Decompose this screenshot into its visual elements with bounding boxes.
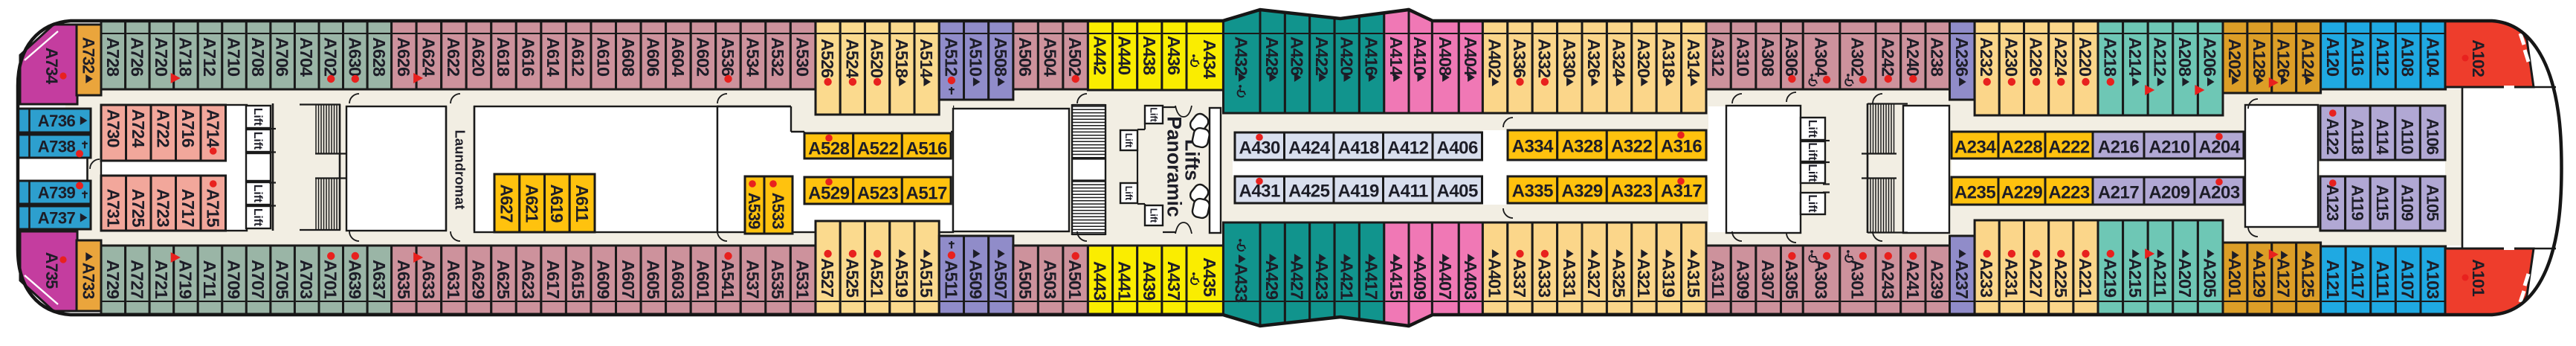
svg-text:A323: A323 bbox=[1611, 182, 1653, 202]
svg-text:A531: A531 bbox=[793, 260, 813, 299]
svg-text:A201: A201 bbox=[2225, 258, 2244, 298]
svg-text:A718: A718 bbox=[175, 37, 195, 77]
svg-text:A730: A730 bbox=[104, 109, 123, 147]
svg-text:A437: A437 bbox=[1164, 261, 1184, 301]
svg-text:A724: A724 bbox=[129, 109, 148, 148]
svg-text:A719: A719 bbox=[175, 260, 195, 299]
svg-text:A737: A737 bbox=[38, 208, 76, 227]
svg-text:A504: A504 bbox=[1041, 37, 1060, 77]
svg-text:A308: A308 bbox=[1758, 37, 1778, 77]
svg-text:A218: A218 bbox=[2100, 37, 2120, 77]
svg-text:A307: A307 bbox=[1758, 260, 1778, 299]
svg-text:A411: A411 bbox=[1388, 182, 1428, 202]
svg-text:A505: A505 bbox=[1016, 260, 1035, 299]
svg-text:A208: A208 bbox=[2175, 37, 2195, 77]
svg-text:A526: A526 bbox=[818, 39, 837, 78]
svg-text:A129: A129 bbox=[2250, 258, 2269, 298]
svg-text:A110: A110 bbox=[2398, 118, 2417, 154]
svg-text:A125: A125 bbox=[2299, 258, 2318, 298]
svg-text:A425: A425 bbox=[1288, 182, 1330, 202]
svg-text:A408: A408 bbox=[1436, 36, 1455, 76]
svg-text:A623: A623 bbox=[519, 260, 538, 299]
svg-text:A109: A109 bbox=[2398, 185, 2417, 221]
svg-text:A316: A316 bbox=[1661, 137, 1702, 157]
svg-text:A410: A410 bbox=[1410, 36, 1430, 76]
svg-text:A206: A206 bbox=[2201, 37, 2220, 77]
svg-text:A528: A528 bbox=[808, 139, 850, 159]
svg-text:A232: A232 bbox=[1977, 37, 1996, 77]
svg-text:A602: A602 bbox=[694, 37, 713, 77]
svg-text:A420: A420 bbox=[1337, 36, 1356, 76]
svg-text:A619: A619 bbox=[547, 185, 566, 222]
svg-text:A535: A535 bbox=[768, 260, 787, 299]
svg-text:A515: A515 bbox=[917, 258, 936, 298]
svg-text:A216: A216 bbox=[2098, 138, 2140, 158]
svg-text:Lift: Lift bbox=[251, 108, 264, 126]
svg-text:A530: A530 bbox=[793, 37, 813, 77]
svg-text:A728: A728 bbox=[103, 37, 123, 77]
svg-text:A226: A226 bbox=[2027, 37, 2046, 77]
svg-text:A527: A527 bbox=[818, 258, 837, 298]
svg-text:A108: A108 bbox=[2398, 37, 2418, 77]
svg-text:A725: A725 bbox=[129, 189, 148, 228]
svg-text:A716: A716 bbox=[178, 109, 198, 147]
svg-text:A442: A442 bbox=[1091, 36, 1110, 75]
svg-text:A439: A439 bbox=[1140, 261, 1159, 301]
svg-text:A414: A414 bbox=[1387, 36, 1406, 76]
svg-text:A235: A235 bbox=[1954, 183, 1996, 203]
svg-text:A318: A318 bbox=[1659, 39, 1678, 78]
svg-text:A738: A738 bbox=[38, 137, 76, 156]
svg-text:A726: A726 bbox=[127, 37, 146, 77]
svg-text:A507: A507 bbox=[991, 260, 1010, 299]
svg-text:A712: A712 bbox=[200, 37, 219, 77]
svg-text:A412: A412 bbox=[1387, 138, 1429, 158]
svg-text:A126: A126 bbox=[2274, 39, 2293, 78]
svg-text:A229: A229 bbox=[2001, 183, 2043, 203]
svg-text:A516: A516 bbox=[906, 139, 948, 159]
svg-text:A330: A330 bbox=[1560, 39, 1579, 78]
svg-text:A514: A514 bbox=[917, 39, 936, 78]
svg-text:A419: A419 bbox=[1338, 182, 1380, 202]
svg-text:A331: A331 bbox=[1560, 258, 1579, 298]
svg-text:A731: A731 bbox=[104, 189, 123, 228]
svg-text:A429: A429 bbox=[1262, 260, 1282, 300]
svg-text:A122: A122 bbox=[2323, 118, 2342, 155]
svg-text:A601: A601 bbox=[694, 260, 713, 299]
svg-text:A711: A711 bbox=[200, 260, 219, 299]
svg-text:A402: A402 bbox=[1485, 39, 1505, 78]
svg-text:A721: A721 bbox=[152, 260, 171, 299]
svg-text:A409: A409 bbox=[1410, 260, 1430, 300]
svg-text:A214: A214 bbox=[2125, 37, 2145, 77]
svg-text:A415: A415 bbox=[1387, 260, 1406, 300]
svg-text:A626: A626 bbox=[394, 37, 413, 77]
svg-text:A610: A610 bbox=[593, 37, 613, 77]
svg-text:A501: A501 bbox=[1065, 260, 1085, 299]
svg-text:A406: A406 bbox=[1437, 138, 1479, 158]
svg-text:A324: A324 bbox=[1610, 39, 1629, 78]
svg-text:A227: A227 bbox=[2027, 258, 2046, 298]
svg-text:A237: A237 bbox=[1952, 260, 1972, 299]
svg-text:A103: A103 bbox=[2423, 260, 2442, 299]
svg-text:A337: A337 bbox=[1510, 258, 1529, 298]
svg-text:A735: A735 bbox=[42, 252, 61, 289]
svg-text:A625: A625 bbox=[494, 260, 513, 299]
svg-text:Lift: Lift bbox=[1806, 120, 1818, 138]
svg-text:A329: A329 bbox=[1561, 182, 1603, 202]
svg-text:A119: A119 bbox=[2348, 185, 2366, 220]
svg-text:A612: A612 bbox=[569, 37, 588, 77]
svg-text:Lift: Lift bbox=[251, 132, 264, 150]
svg-text:A611: A611 bbox=[572, 185, 592, 222]
svg-text:A305: A305 bbox=[1782, 260, 1801, 299]
svg-text:A440: A440 bbox=[1115, 36, 1134, 75]
svg-text:A521: A521 bbox=[868, 258, 887, 298]
svg-text:A729: A729 bbox=[103, 260, 123, 299]
svg-text:A115: A115 bbox=[2373, 185, 2392, 220]
svg-text:A301: A301 bbox=[1847, 260, 1867, 299]
svg-text:A405: A405 bbox=[1437, 182, 1479, 202]
svg-text:A511: A511 bbox=[941, 260, 961, 299]
svg-text:A418: A418 bbox=[1338, 138, 1380, 158]
svg-text:A202: A202 bbox=[2225, 39, 2244, 78]
svg-text:A620: A620 bbox=[469, 37, 488, 77]
svg-text:A433: A433 bbox=[1232, 263, 1251, 303]
svg-text:A306: A306 bbox=[1782, 37, 1801, 77]
svg-text:Lift: Lift bbox=[1123, 186, 1134, 201]
svg-text:A219: A219 bbox=[2100, 258, 2120, 298]
svg-text:A607: A607 bbox=[619, 260, 638, 299]
svg-text:A706: A706 bbox=[273, 37, 292, 77]
svg-text:A312: A312 bbox=[1708, 37, 1728, 77]
svg-text:Lift: Lift bbox=[1806, 194, 1818, 212]
svg-text:A336: A336 bbox=[1510, 39, 1529, 78]
svg-text:A503: A503 bbox=[1041, 260, 1060, 299]
svg-text:A524: A524 bbox=[842, 39, 862, 78]
svg-text:A443: A443 bbox=[1091, 261, 1110, 301]
svg-text:A616: A616 bbox=[519, 37, 538, 77]
svg-text:A238: A238 bbox=[1928, 37, 1947, 77]
svg-text:A230: A230 bbox=[2001, 37, 2021, 77]
svg-text:A710: A710 bbox=[225, 37, 244, 77]
svg-text:A605: A605 bbox=[643, 260, 662, 299]
svg-text:Lift: Lift bbox=[1123, 133, 1134, 148]
svg-text:A615: A615 bbox=[569, 260, 588, 299]
svg-text:A709: A709 bbox=[225, 260, 244, 299]
svg-text:A539: A539 bbox=[745, 193, 764, 229]
svg-text:A101: A101 bbox=[2469, 259, 2488, 296]
svg-text:A717: A717 bbox=[178, 189, 198, 227]
svg-text:A241: A241 bbox=[1903, 260, 1923, 299]
svg-text:A630: A630 bbox=[345, 37, 364, 77]
svg-text:A434: A434 bbox=[1200, 39, 1219, 79]
svg-text:A121: A121 bbox=[2323, 260, 2343, 299]
svg-text:A633: A633 bbox=[419, 260, 438, 299]
svg-text:A618: A618 bbox=[494, 37, 513, 77]
svg-text:A231: A231 bbox=[2001, 258, 2021, 298]
svg-text:A203: A203 bbox=[2198, 183, 2240, 203]
svg-text:A333: A333 bbox=[1534, 258, 1554, 298]
svg-text:Lift: Lift bbox=[1149, 107, 1159, 122]
svg-text:A622: A622 bbox=[444, 37, 463, 77]
svg-text:A523: A523 bbox=[857, 184, 899, 204]
svg-text:Lift: Lift bbox=[251, 208, 264, 226]
svg-text:A438: A438 bbox=[1140, 36, 1159, 75]
svg-text:A404: A404 bbox=[1461, 36, 1480, 76]
svg-text:A325: A325 bbox=[1610, 258, 1629, 298]
svg-text:A220: A220 bbox=[2076, 37, 2095, 77]
svg-text:A732: A732 bbox=[80, 37, 98, 74]
svg-text:A609: A609 bbox=[593, 260, 613, 299]
svg-text:A303: A303 bbox=[1812, 260, 1831, 299]
svg-text:A221: A221 bbox=[2076, 258, 2095, 298]
svg-text:Lift: Lift bbox=[1149, 208, 1159, 223]
svg-text:A114: A114 bbox=[2373, 118, 2392, 155]
svg-text:A315: A315 bbox=[1684, 258, 1703, 298]
svg-text:A733: A733 bbox=[80, 263, 98, 299]
svg-text:A209: A209 bbox=[2149, 183, 2190, 203]
svg-text:A517: A517 bbox=[906, 184, 948, 204]
svg-text:A423: A423 bbox=[1312, 260, 1331, 300]
svg-text:Laundromat: Laundromat bbox=[452, 130, 468, 210]
svg-text:A707: A707 bbox=[248, 260, 268, 299]
svg-text:A228: A228 bbox=[2001, 138, 2043, 158]
svg-text:A416: A416 bbox=[1362, 36, 1381, 76]
svg-text:A116: A116 bbox=[2349, 38, 2368, 77]
svg-text:A635: A635 bbox=[394, 260, 413, 299]
svg-text:A702: A702 bbox=[321, 37, 340, 77]
svg-text:A225: A225 bbox=[2051, 258, 2070, 298]
svg-text:A424: A424 bbox=[1288, 138, 1331, 158]
svg-text:A128: A128 bbox=[2250, 39, 2269, 78]
svg-text:A401: A401 bbox=[1485, 258, 1505, 298]
svg-text:A111: A111 bbox=[2373, 260, 2392, 298]
svg-text:A112: A112 bbox=[2373, 38, 2392, 77]
svg-text:A426: A426 bbox=[1288, 36, 1307, 76]
svg-text:A510: A510 bbox=[966, 37, 986, 77]
svg-text:A326: A326 bbox=[1584, 39, 1604, 78]
svg-text:A606: A606 bbox=[643, 37, 662, 77]
svg-text:A522: A522 bbox=[857, 139, 899, 159]
svg-text:A739: A739 bbox=[38, 183, 76, 202]
svg-text:A327: A327 bbox=[1584, 258, 1604, 298]
svg-text:A217: A217 bbox=[2098, 183, 2140, 203]
svg-text:A603: A603 bbox=[668, 260, 688, 299]
svg-text:A508: A508 bbox=[991, 37, 1010, 77]
svg-text:A117: A117 bbox=[2349, 260, 2368, 299]
svg-text:A432: A432 bbox=[1232, 36, 1251, 76]
svg-text:Lift: Lift bbox=[251, 185, 264, 202]
svg-text:A436: A436 bbox=[1164, 36, 1184, 75]
svg-text:A102: A102 bbox=[2469, 39, 2488, 77]
svg-text:A628: A628 bbox=[369, 37, 389, 77]
svg-text:A322: A322 bbox=[1611, 137, 1653, 157]
svg-text:A533: A533 bbox=[769, 193, 787, 229]
svg-text:A631: A631 bbox=[444, 260, 463, 299]
svg-text:A211: A211 bbox=[2151, 259, 2170, 298]
svg-text:A205: A205 bbox=[2201, 258, 2220, 298]
svg-text:A727: A727 bbox=[127, 260, 146, 299]
svg-text:A314: A314 bbox=[1684, 39, 1703, 78]
svg-text:A304: A304 bbox=[1812, 37, 1831, 77]
svg-text:A321: A321 bbox=[1634, 258, 1653, 298]
svg-text:A534: A534 bbox=[743, 37, 763, 77]
svg-text:A118: A118 bbox=[2348, 118, 2366, 154]
svg-text:A332: A332 bbox=[1534, 39, 1554, 78]
svg-text:A715: A715 bbox=[204, 189, 223, 228]
svg-text:A608: A608 bbox=[619, 37, 638, 77]
svg-text:A242: A242 bbox=[1878, 37, 1897, 77]
svg-text:A120: A120 bbox=[2323, 37, 2343, 77]
svg-text:A403: A403 bbox=[1461, 260, 1480, 300]
svg-text:A302: A302 bbox=[1847, 37, 1867, 77]
svg-text:A621: A621 bbox=[522, 185, 541, 223]
svg-text:A723: A723 bbox=[154, 189, 173, 227]
svg-text:A407: A407 bbox=[1436, 260, 1455, 300]
svg-text:A502: A502 bbox=[1065, 37, 1085, 77]
svg-text:A736: A736 bbox=[38, 112, 76, 130]
svg-text:A704: A704 bbox=[297, 37, 316, 77]
svg-text:A627: A627 bbox=[497, 185, 517, 222]
svg-text:Lift: Lift bbox=[1806, 164, 1818, 182]
svg-text:A519: A519 bbox=[892, 258, 911, 298]
svg-text:A236: A236 bbox=[1952, 37, 1972, 77]
svg-text:A421: A421 bbox=[1337, 260, 1356, 300]
svg-text:A520: A520 bbox=[868, 39, 887, 78]
svg-text:A239: A239 bbox=[1928, 260, 1947, 299]
svg-text:A720: A720 bbox=[152, 37, 171, 77]
svg-text:A734: A734 bbox=[42, 48, 61, 85]
svg-text:A243: A243 bbox=[1878, 260, 1897, 299]
svg-text:A714: A714 bbox=[204, 109, 223, 148]
svg-text:A215: A215 bbox=[2125, 258, 2145, 298]
svg-text:A105: A105 bbox=[2423, 185, 2441, 221]
svg-text:A334: A334 bbox=[1512, 137, 1555, 157]
svg-text:A708: A708 bbox=[248, 37, 268, 77]
svg-text:A705: A705 bbox=[273, 260, 292, 299]
svg-text:A422: A422 bbox=[1312, 36, 1331, 76]
svg-text:A222: A222 bbox=[2048, 138, 2090, 158]
svg-text:A604: A604 bbox=[668, 37, 688, 77]
svg-text:A624: A624 bbox=[419, 37, 438, 77]
svg-text:A703: A703 bbox=[297, 260, 316, 299]
svg-text:A310: A310 bbox=[1734, 37, 1753, 77]
svg-text:A224: A224 bbox=[2051, 37, 2070, 77]
svg-text:A509: A509 bbox=[966, 260, 986, 299]
svg-text:A212: A212 bbox=[2151, 37, 2170, 77]
svg-text:A441: A441 bbox=[1115, 261, 1134, 301]
svg-text:A311: A311 bbox=[1708, 260, 1728, 299]
svg-text:A629: A629 bbox=[469, 260, 488, 299]
svg-text:A328: A328 bbox=[1561, 137, 1603, 157]
svg-text:A127: A127 bbox=[2274, 258, 2293, 298]
svg-text:A537: A537 bbox=[743, 260, 763, 299]
svg-text:A210: A210 bbox=[2149, 138, 2190, 158]
svg-text:A240: A240 bbox=[1903, 37, 1923, 77]
svg-text:A512: A512 bbox=[941, 37, 961, 77]
svg-text:A428: A428 bbox=[1262, 36, 1282, 76]
svg-text:A435: A435 bbox=[1200, 257, 1219, 297]
svg-text:A506: A506 bbox=[1016, 37, 1035, 77]
svg-text:A639: A639 bbox=[345, 260, 364, 299]
svg-text:A617: A617 bbox=[543, 260, 563, 299]
svg-text:A518: A518 bbox=[892, 39, 911, 78]
svg-text:A234: A234 bbox=[1954, 138, 1997, 158]
svg-text:A701: A701 bbox=[321, 260, 340, 299]
svg-text:A614: A614 bbox=[543, 37, 563, 77]
svg-text:A207: A207 bbox=[2175, 258, 2195, 298]
svg-text:A637: A637 bbox=[369, 260, 389, 299]
svg-text:A104: A104 bbox=[2423, 37, 2442, 77]
svg-text:A335: A335 bbox=[1512, 182, 1554, 202]
svg-text:A223: A223 bbox=[2048, 183, 2090, 203]
svg-text:A430: A430 bbox=[1239, 138, 1281, 158]
svg-text:A319: A319 bbox=[1659, 258, 1678, 298]
svg-text:A541: A541 bbox=[718, 260, 737, 299]
svg-text:A320: A320 bbox=[1634, 39, 1653, 78]
svg-text:A204: A204 bbox=[2198, 138, 2241, 158]
svg-text:A233: A233 bbox=[1977, 258, 1996, 298]
svg-text:A525: A525 bbox=[842, 258, 862, 298]
svg-text:A106: A106 bbox=[2423, 118, 2441, 155]
svg-text:A107: A107 bbox=[2398, 260, 2418, 299]
svg-text:A722: A722 bbox=[154, 109, 173, 147]
svg-text:Lift: Lift bbox=[1806, 142, 1818, 160]
svg-text:A124: A124 bbox=[2299, 39, 2318, 78]
svg-text:A529: A529 bbox=[808, 184, 850, 204]
svg-text:A417: A417 bbox=[1362, 260, 1381, 300]
svg-text:A123: A123 bbox=[2323, 185, 2342, 221]
svg-text:A536: A536 bbox=[718, 37, 737, 77]
svg-text:A427: A427 bbox=[1288, 260, 1307, 300]
svg-text:A532: A532 bbox=[768, 37, 787, 77]
svg-text:A309: A309 bbox=[1734, 260, 1753, 299]
